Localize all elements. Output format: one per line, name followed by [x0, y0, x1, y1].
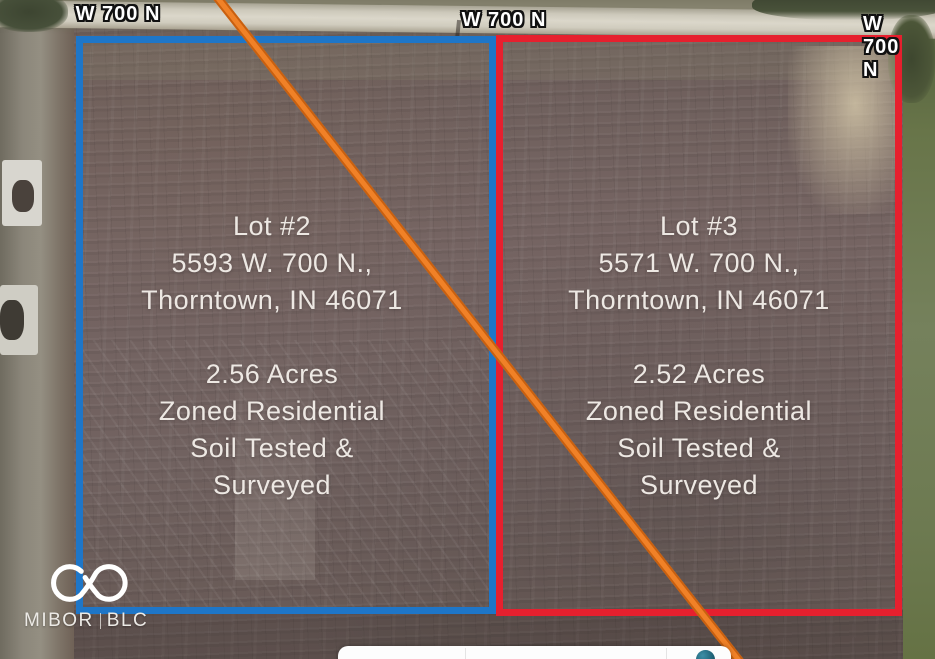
road-label: W 700 N [76, 3, 161, 26]
watermark-brand: MIBOR [24, 610, 94, 632]
lot3-note-line2: Surveyed [529, 467, 869, 504]
spacer [102, 319, 442, 356]
lot3-name: Lot #3 [529, 208, 869, 245]
infinity-icon [44, 558, 134, 608]
lot3-note-line1: Soil Tested & [529, 430, 869, 467]
lot2-address-line2: Thorntown, IN 46071 [102, 282, 442, 319]
aerial-lot-photo: W 700 N W 700 N W 700 N Lot #2 5593 W. 7… [0, 0, 935, 659]
watermark-divider [100, 613, 101, 629]
lot2-note-line1: Soil Tested & [102, 430, 442, 467]
lot2-acreage: 2.56 Acres [102, 356, 442, 393]
watermark-text: MIBOR BLC [24, 610, 164, 632]
bottom-toolbar[interactable] [338, 646, 731, 659]
mibor-blc-watermark: MIBOR BLC [24, 558, 164, 632]
spacer [529, 319, 869, 356]
lot2-zoning: Zoned Residential [102, 393, 442, 430]
road-label: W 700 N [863, 13, 911, 82]
toolbar-divider [465, 648, 466, 659]
lot3-address-line2: Thorntown, IN 46071 [529, 282, 869, 319]
lot3-address-line1: 5571 W. 700 N., [529, 245, 869, 282]
lot2-note-line2: Surveyed [102, 467, 442, 504]
toolbar-divider [666, 648, 667, 659]
farm-building-roof [0, 300, 24, 340]
watermark-suffix: BLC [107, 610, 148, 632]
lot3-acreage: 2.52 Acres [529, 356, 869, 393]
circle-icon[interactable] [696, 650, 715, 659]
lot3-details: Lot #3 5571 W. 700 N., Thorntown, IN 460… [529, 208, 869, 504]
lot2-address-line1: 5593 W. 700 N., [102, 245, 442, 282]
farm-building-roof [12, 180, 34, 212]
lot2-name: Lot #2 [102, 208, 442, 245]
lot2-details: Lot #2 5593 W. 700 N., Thorntown, IN 460… [102, 208, 442, 504]
road-label: W 700 N [462, 9, 547, 32]
lot3-zoning: Zoned Residential [529, 393, 869, 430]
